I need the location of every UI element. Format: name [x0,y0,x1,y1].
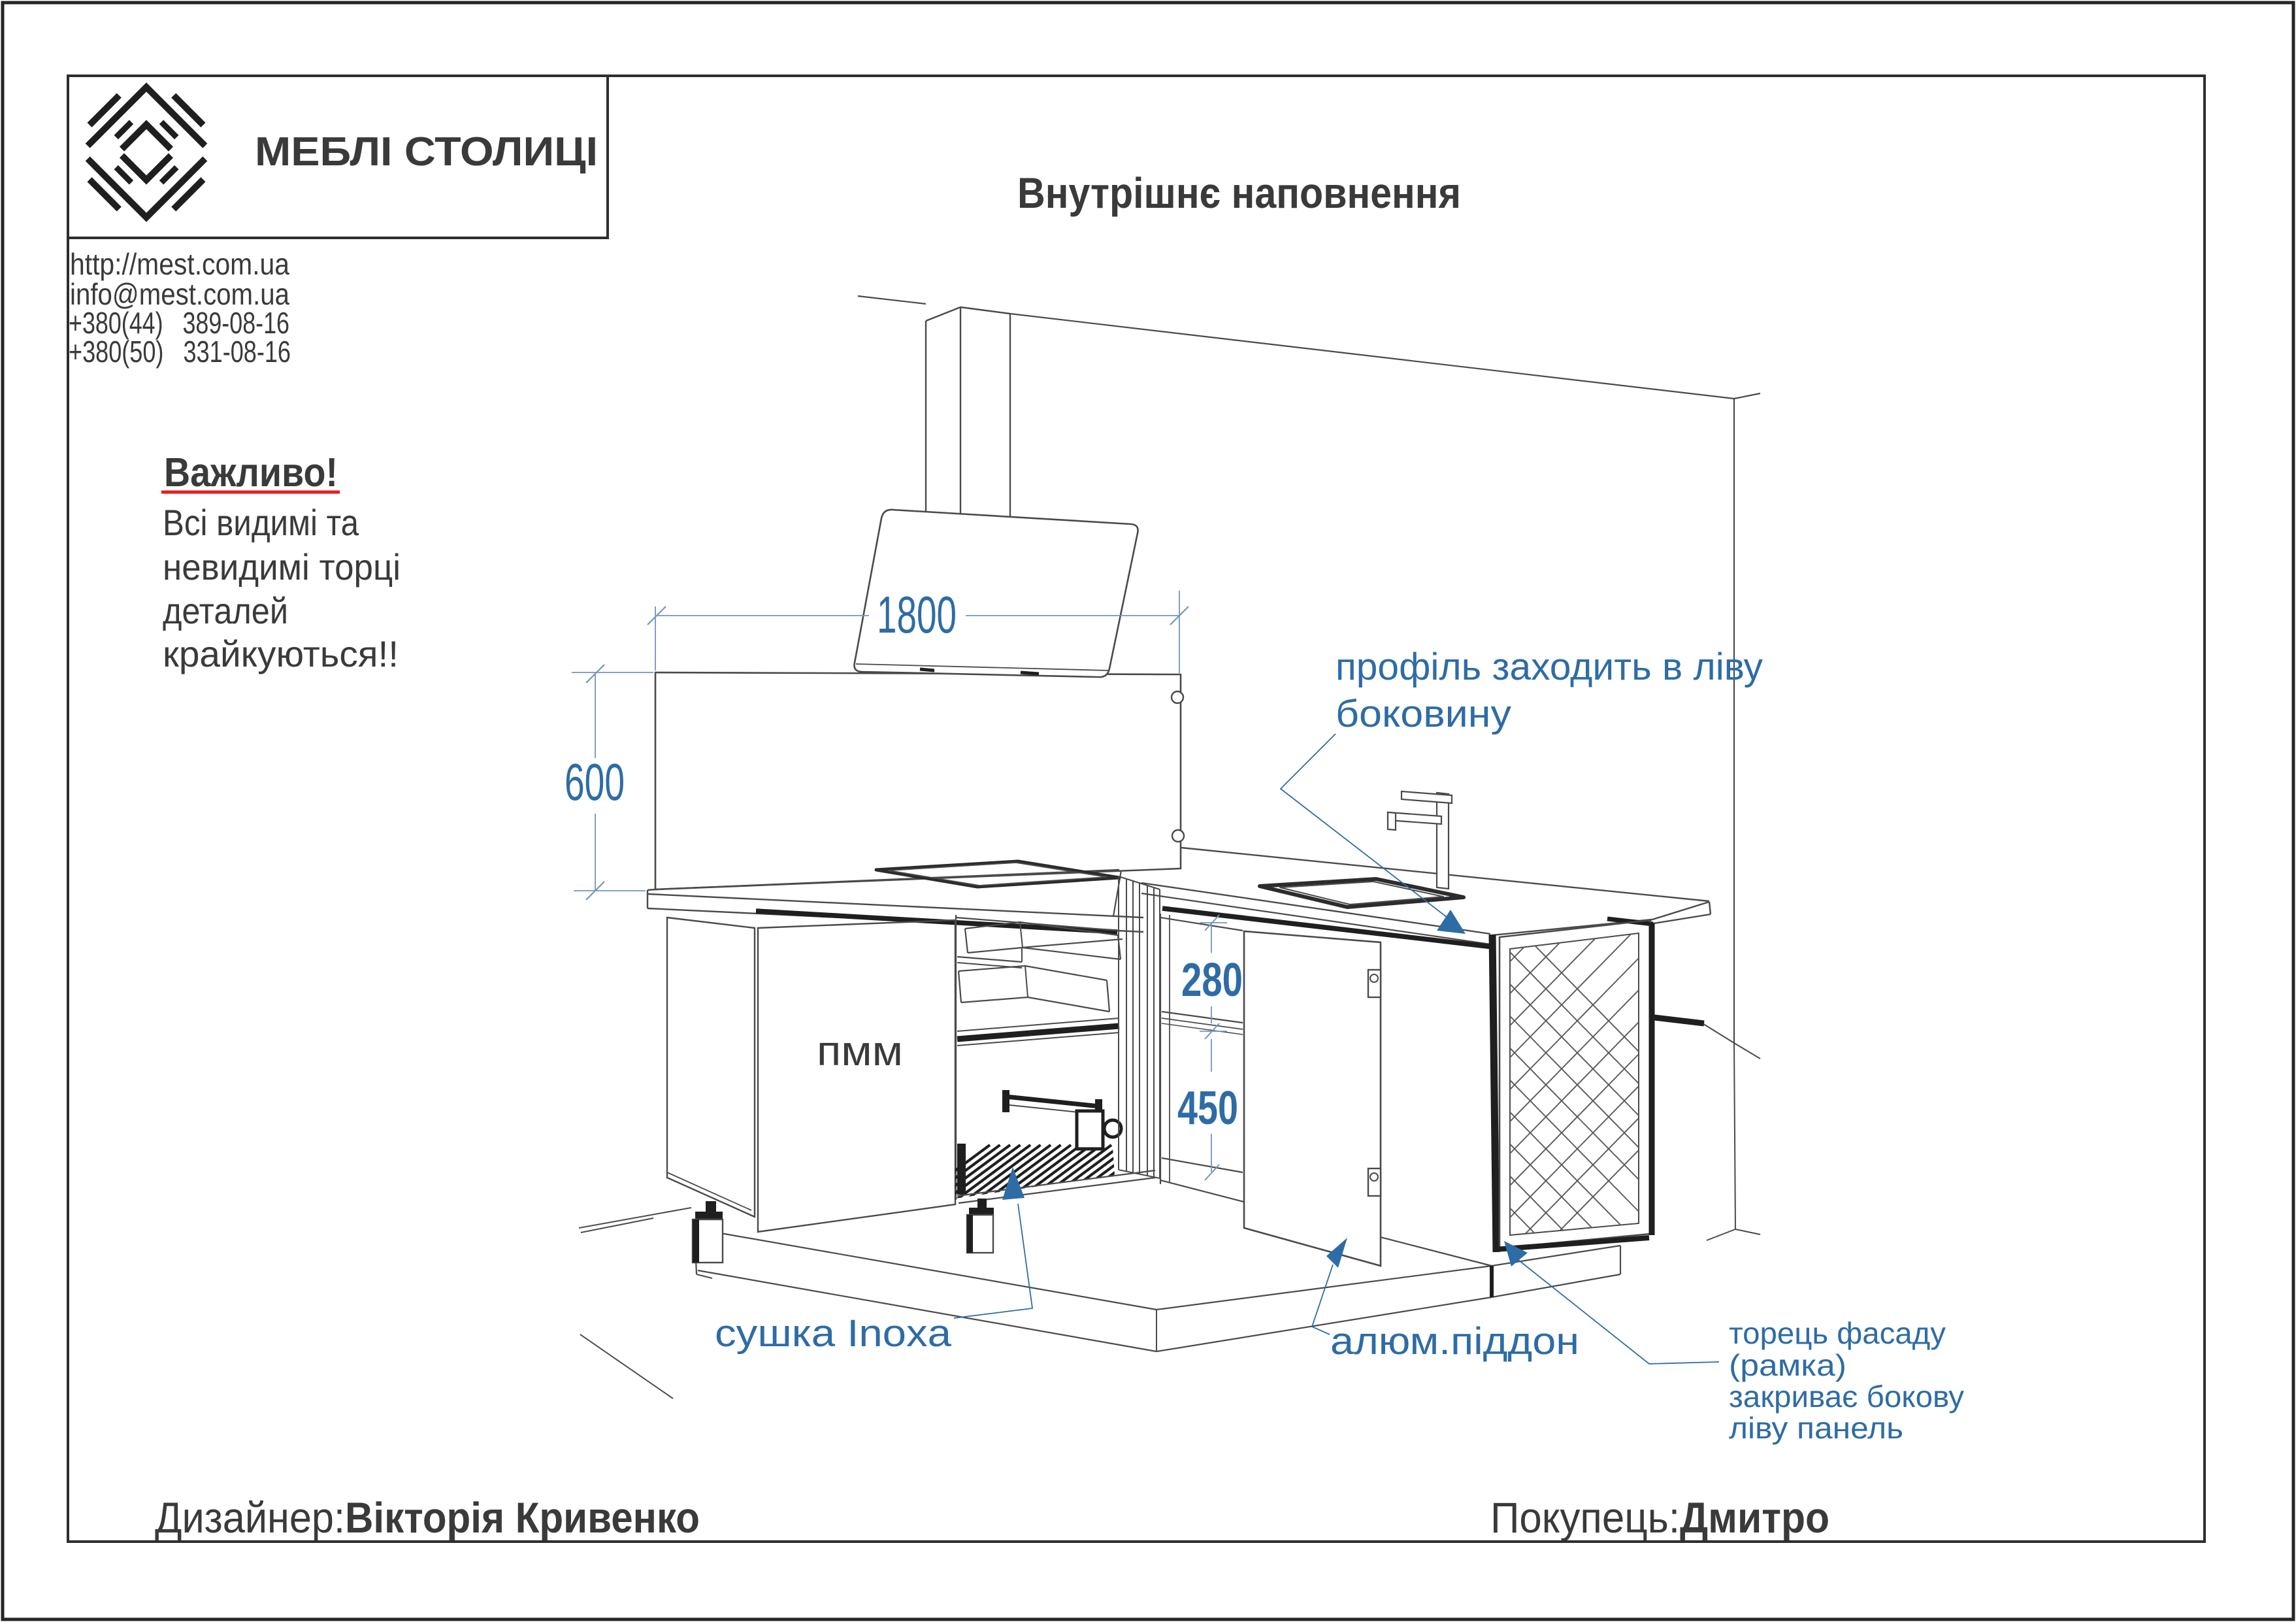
svg-text:крайкуються!!: крайкуються!! [163,633,399,674]
svg-text:Всі видимі та: Всі видимі та [163,502,359,543]
svg-text:Покупець:: Покупець: [1490,1493,1680,1542]
svg-text:торець фасаду: торець фасаду [1729,1316,1946,1350]
svg-text:боковину: боковину [1336,693,1511,735]
svg-text:МЕБЛІ СТОЛИЦІ: МЕБЛІ СТОЛИЦІ [255,129,598,174]
svg-text:(рамка): (рамка) [1729,1348,1846,1382]
svg-text:сушка Inoxa: сушка Inoxa [715,1312,952,1355]
svg-text:профіль заходить в ліву: профіль заходить в ліву [1336,646,1763,688]
svg-text:невидимі торці: невидимі торці [163,546,401,588]
svg-text:Дмитро: Дмитро [1680,1493,1829,1542]
svg-text:алюм.піддон: алюм.піддон [1330,1320,1579,1363]
svg-text:Дизайнер:: Дизайнер: [155,1493,345,1542]
svg-text:600: 600 [565,753,625,811]
svg-text:450: 450 [1177,1082,1238,1134]
svg-text:Важливо!: Важливо! [164,450,338,495]
svg-text:Вікторія Кривенко: Вікторія Кривенко [345,1493,700,1542]
svg-text:ліву панель: ліву панель [1729,1411,1903,1445]
svg-text:Внутрішнє наповнення: Внутрішнє наповнення [1017,169,1461,217]
svg-text:пмм: пмм [817,1027,903,1074]
svg-text:http://mest.com.ua: http://mest.com.ua [70,247,289,281]
svg-text:+380(50) 331-08-16: +380(50) 331-08-16 [69,335,291,369]
svg-text:280: 280 [1181,954,1243,1006]
svg-text:1800: 1800 [877,586,957,644]
svg-text:деталей: деталей [163,590,288,631]
svg-text:закриває бокову: закриває бокову [1729,1380,1964,1414]
